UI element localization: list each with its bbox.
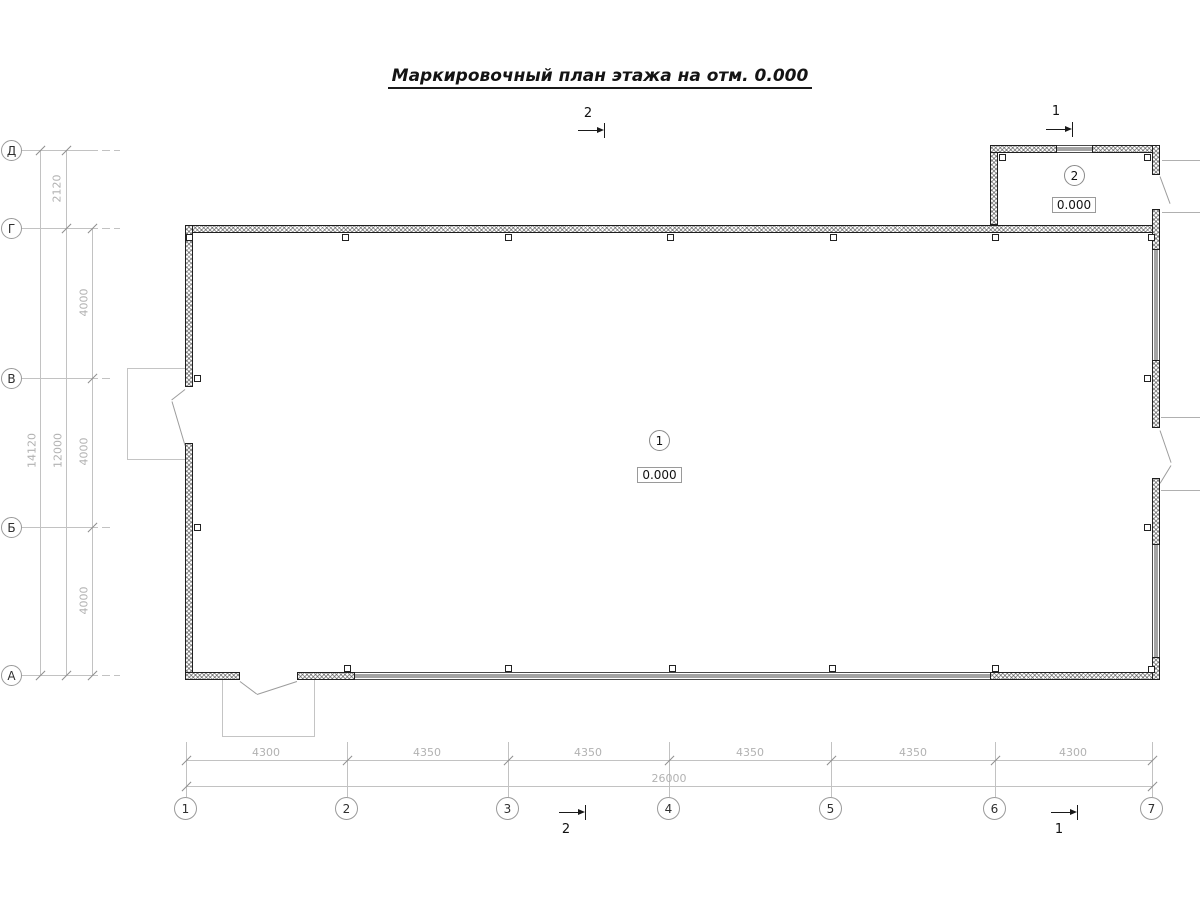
axis-line-g-dash	[102, 228, 110, 229]
room-1-number: 1	[656, 434, 664, 448]
dim-value-5-6: 4350	[883, 746, 943, 759]
column-mark	[992, 234, 999, 241]
window-band-right-upper	[1152, 250, 1160, 360]
annex-wall-right-upper	[1152, 145, 1160, 175]
axis-line-d	[22, 150, 98, 151]
axis-line-d-dash	[114, 150, 120, 151]
column-mark	[194, 524, 201, 531]
column-mark	[1144, 524, 1151, 531]
axis-label-6: 6	[991, 802, 999, 816]
axis-line-b-dash	[102, 527, 110, 528]
dim-value-3-4: 4350	[558, 746, 618, 759]
section-mark-2-bottom-label: 2	[558, 822, 574, 837]
axis-ext-5	[831, 742, 832, 797]
dim-line-total-left	[40, 150, 41, 675]
axis-label-d: Д	[7, 144, 16, 158]
platform-line	[1162, 212, 1200, 213]
column-mark	[667, 234, 674, 241]
axis-label-a: А	[7, 669, 15, 683]
column-mark	[669, 665, 676, 672]
section-arrowhead	[1070, 809, 1077, 815]
section-mark-1-top-label: 1	[1048, 104, 1064, 119]
axis-bubble-7: 7	[1140, 797, 1163, 820]
column-mark	[829, 665, 836, 672]
axis-bubble-5: 5	[819, 797, 842, 820]
axis-label-5: 5	[827, 802, 835, 816]
drawing-title-row: Маркировочный план этажа на отм. 0.000	[0, 66, 1200, 89]
platform-line	[1162, 160, 1200, 161]
dim-value-6-7: 4300	[1043, 746, 1103, 759]
column-mark	[342, 234, 349, 241]
section-arrowhead	[597, 127, 604, 133]
dim-value-v-b: 4000	[78, 422, 91, 482]
dim-value-b-a: 4000	[78, 571, 91, 631]
section-mark-bar	[1077, 805, 1078, 820]
column-mark	[999, 154, 1006, 161]
axis-line-a	[22, 675, 98, 676]
column-mark	[1144, 154, 1151, 161]
axis-label-7: 7	[1148, 802, 1156, 816]
axis-label-3: 3	[504, 802, 512, 816]
room-2-elevation: 0.000	[1052, 197, 1096, 213]
door-swing-right	[1160, 430, 1172, 462]
axis-bubble-1: 1	[174, 797, 197, 820]
platform-line	[1161, 490, 1200, 491]
wall-right-mid	[1152, 478, 1160, 545]
window-band-annex	[1057, 145, 1092, 153]
wall-right-upper	[1152, 360, 1160, 428]
axis-ext-7	[1152, 742, 1153, 797]
axis-bubble-6: 6	[983, 797, 1006, 820]
axis-line-v	[22, 378, 98, 379]
annex-wall-right-lower	[1152, 209, 1160, 250]
door-swing-right	[1160, 465, 1172, 483]
room-2-bubble: 2	[1064, 165, 1085, 186]
wall-bottom-right	[990, 672, 1160, 680]
column-mark	[186, 234, 193, 241]
column-mark	[505, 665, 512, 672]
annex-wall-top-right	[1092, 145, 1160, 153]
wall-bottom-mid	[297, 672, 355, 680]
section-arrowhead	[1065, 126, 1072, 132]
axis-ext-3	[508, 742, 509, 797]
axis-bubble-a: А	[1, 665, 22, 686]
axis-bubble-d: Д	[1, 140, 22, 161]
axis-bubble-4: 4	[657, 797, 680, 820]
axis-label-g: Г	[8, 222, 15, 236]
axis-ext-6	[995, 742, 996, 797]
section-mark-1-bottom-arrow	[1051, 812, 1072, 813]
wall-bottom-left	[185, 672, 240, 680]
wall-left-lower	[185, 443, 193, 680]
dim-value-total-left: 14120	[26, 421, 39, 481]
axis-line-a-dash	[102, 675, 110, 676]
axis-line-v-dash	[102, 378, 110, 379]
room-1-bubble: 1	[649, 430, 670, 451]
axis-bubble-3: 3	[496, 797, 519, 820]
dim-value-4-5: 4350	[720, 746, 780, 759]
window-band-right-lower	[1152, 545, 1160, 657]
axis-bubble-b: Б	[1, 517, 22, 538]
column-mark	[1148, 666, 1155, 673]
dim-value-d-g: 2120	[51, 159, 64, 219]
axis-bubble-g: Г	[1, 218, 22, 239]
wall-left-upper	[185, 225, 193, 387]
axis-ext-4	[669, 742, 670, 797]
door-swing-annex	[1160, 176, 1171, 204]
window-band-bottom	[355, 672, 990, 680]
column-mark	[505, 234, 512, 241]
section-arrowhead	[578, 809, 585, 815]
column-mark	[194, 375, 201, 382]
annex-wall-left	[990, 145, 998, 225]
axis-bubble-v: В	[1, 368, 22, 389]
section-mark-2-top-label: 2	[580, 106, 596, 121]
dim-value-g-v: 4000	[78, 273, 91, 333]
column-mark	[830, 234, 837, 241]
section-mark-2-bottom-arrow	[559, 812, 580, 813]
dim-value-1-2: 4300	[236, 746, 296, 759]
section-mark-bar	[604, 123, 605, 138]
room-1-elevation: 0.000	[637, 467, 682, 483]
axis-line-b	[22, 527, 98, 528]
section-mark-bar	[1072, 122, 1073, 137]
axis-ext-1	[186, 742, 187, 797]
column-mark	[992, 665, 999, 672]
column-mark	[344, 665, 351, 672]
drawing-title: Маркировочный план этажа на отм. 0.000	[388, 66, 813, 89]
floor-plan-drawing: Маркировочный план этажа на отм. 0.000 2…	[0, 0, 1200, 900]
section-mark-1-bottom-label: 1	[1051, 822, 1067, 837]
column-mark	[1144, 375, 1151, 382]
axis-line-d-dash	[102, 150, 110, 151]
section-mark-1-top-arrow	[1046, 129, 1067, 130]
axis-bubble-2: 2	[335, 797, 358, 820]
axis-label-v: В	[7, 372, 15, 386]
section-mark-2-top-arrow	[578, 130, 599, 131]
axis-line-a-dash	[114, 675, 120, 676]
axis-label-b: Б	[7, 521, 15, 535]
dim-value-total-bottom: 26000	[639, 772, 699, 785]
platform-line	[1161, 417, 1200, 418]
axis-ext-2	[347, 742, 348, 797]
dim-line-spans-left	[92, 228, 93, 675]
section-mark-bar	[585, 805, 586, 820]
axis-label-4: 4	[665, 802, 673, 816]
axis-line-g-dash	[114, 228, 120, 229]
axis-line-g	[22, 228, 98, 229]
dim-line-total-bottom	[186, 786, 1152, 787]
axis-label-1: 1	[182, 802, 190, 816]
wall-top	[185, 225, 1160, 233]
annex-wall-top-left	[990, 145, 1057, 153]
axis-label-2: 2	[343, 802, 351, 816]
dim-value-subtotal-left: 12000	[52, 421, 65, 481]
dim-value-2-3: 4350	[397, 746, 457, 759]
column-mark	[1148, 234, 1155, 241]
room-2-number: 2	[1071, 169, 1079, 183]
porch-bottom	[222, 680, 315, 737]
